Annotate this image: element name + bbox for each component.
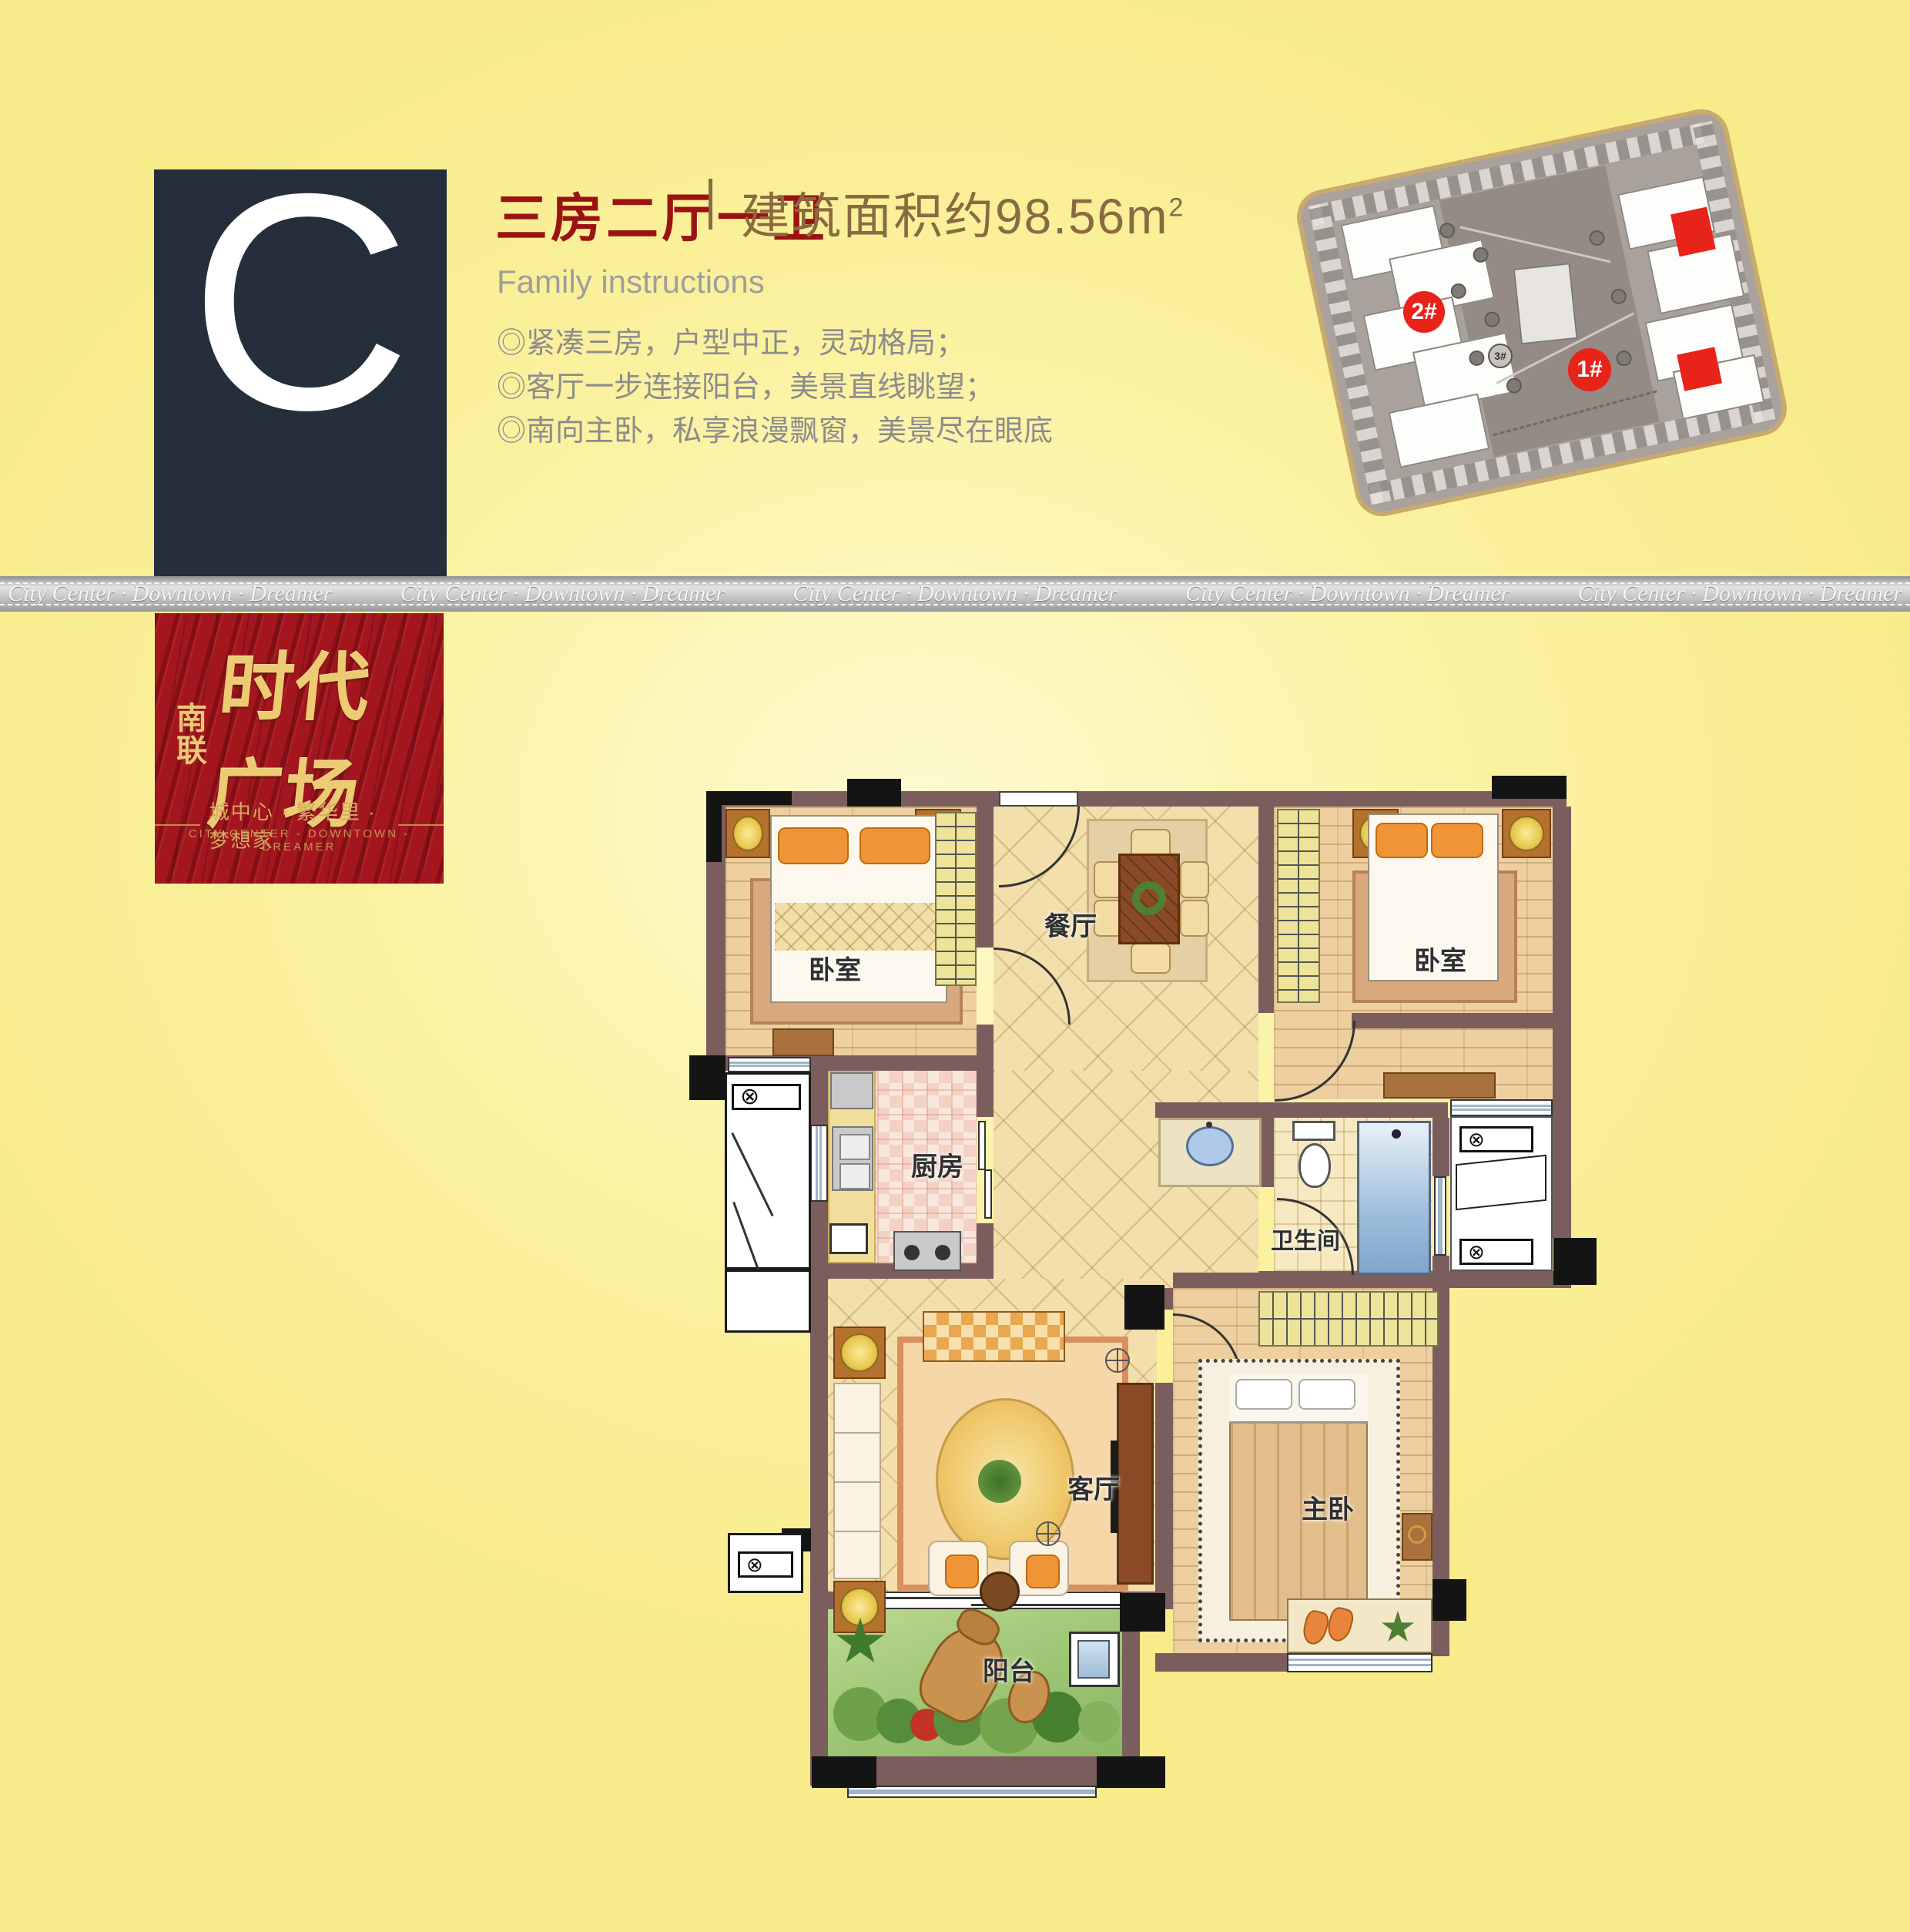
sink-basin: [839, 1163, 870, 1189]
ribbon-text: City Center · Downtown · Dreamer: [1185, 581, 1510, 607]
floor-plan: ⊗ ⊗ 卧室 餐厅 卧室: [685, 770, 1640, 1872]
wall-segment: [706, 791, 1567, 807]
wall-segment: [1155, 1653, 1287, 1672]
slipper-icon: [1300, 1608, 1331, 1647]
shower-head-icon: [1392, 1129, 1401, 1139]
brand-prefix-top: 南: [176, 703, 207, 735]
window: [810, 1125, 828, 1202]
column: [1120, 1593, 1165, 1632]
window: [1287, 1653, 1432, 1672]
closet-box: ⊗: [1459, 1239, 1533, 1265]
brand-row: 南 联 时代广场: [176, 696, 423, 773]
room-label-balcony: 阳台: [983, 1650, 1035, 1688]
dresser: [1402, 1513, 1432, 1561]
dining-chair: [1180, 861, 1209, 898]
slipper-icon: [1325, 1605, 1355, 1644]
ribbon-text: City Center · Downtown · Dreamer: [1578, 581, 1902, 607]
column: [1553, 1238, 1597, 1285]
highlighted-unit: [1677, 347, 1722, 391]
pillow: [945, 1555, 979, 1588]
toilet-tank: [1292, 1121, 1335, 1141]
plant-icon: [1078, 1701, 1120, 1742]
feature-item: ◎紧凑三房，户型中正，灵动格局；: [497, 322, 1053, 366]
badge-building-1: 1#: [1568, 348, 1611, 391]
toilet-bowl: [1298, 1143, 1331, 1188]
ribbon-text: City Center · Downtown · Dreamer: [400, 581, 725, 607]
ribbon-dashed-line: [0, 604, 1910, 605]
mirror-icon: [1408, 1525, 1426, 1544]
building-2: [1389, 394, 1490, 468]
window: [1450, 1099, 1553, 1116]
badge-building-3: 3#: [1488, 344, 1513, 368]
stove: [893, 1231, 961, 1271]
shower: [1357, 1121, 1431, 1275]
feature-item: ◎南向主卧，私享浪漫飘窗，美景尽在眼底: [497, 410, 1053, 454]
balcony-cabinet: [1069, 1632, 1120, 1687]
ribbon-text: City Center · Downtown · Dreamer: [8, 581, 332, 607]
unit-marker-icon: ⊗: [746, 1555, 763, 1575]
subtitle-en: Family instructions: [497, 263, 765, 300]
kitchen-sliding-door: [978, 1121, 986, 1170]
area-superscript: 2: [1168, 193, 1185, 223]
wall-segment: [1173, 1273, 1449, 1288]
dresser: [772, 1028, 834, 1056]
closet-panel: [1456, 1155, 1546, 1210]
column: [812, 1756, 876, 1788]
wardrobe: [1258, 1291, 1439, 1347]
tv-console: [1117, 1383, 1154, 1585]
room-label-kitchen: 厨房: [911, 1145, 963, 1183]
area-value: 建筑面积约98.56m: [741, 189, 1168, 244]
dining-chair: [1180, 900, 1209, 937]
plant-centerpiece: [978, 1460, 1021, 1503]
burner-icon: [935, 1245, 950, 1260]
bay-window-seat: [1287, 1598, 1432, 1653]
tagline-line: [155, 824, 200, 826]
sink-basin: [839, 1134, 870, 1160]
pillow: [859, 827, 930, 864]
tagline-line: [398, 824, 444, 826]
bed-blanket-band: [775, 903, 943, 951]
column: [689, 1055, 725, 1100]
room-label-master: 主卧: [1302, 1488, 1354, 1526]
kitchen-sink: [832, 1126, 873, 1191]
wall-segment: [1262, 1118, 1274, 1187]
wardrobe: [935, 812, 977, 986]
nightstand: [1502, 809, 1551, 858]
lamp-icon: [840, 1333, 879, 1372]
unit-type-box: C [户型] 1#楼2单元/6单元: [154, 169, 447, 578]
oven: [829, 1223, 868, 1254]
ceiling-fixture-icon: [1036, 1521, 1061, 1546]
brand-tagline-en: CITY CENTER - DOWNTOWN - DREAMER: [155, 827, 444, 854]
badge-building-2: 2#: [1403, 291, 1445, 333]
unit-marker-icon: ⊗: [740, 1085, 759, 1109]
unit-marker-icon: ⊗: [1468, 1129, 1485, 1149]
column: [706, 791, 722, 862]
site-plan-map: [1292, 104, 1791, 521]
flyer-page: C [户型] 1#楼2单元/6单元 三房二厅一卫 建筑面积约98.56m2 Fa…: [0, 0, 1910, 1932]
wall-segment: [1432, 1256, 1449, 1288]
pillow: [778, 827, 849, 864]
pillow: [1235, 1379, 1292, 1410]
column: [1432, 1579, 1466, 1621]
window: [728, 1057, 811, 1072]
cabinet-screen: [1077, 1640, 1110, 1679]
dining-chair: [1131, 943, 1171, 974]
brand-prefix-bottom: 联: [176, 735, 207, 767]
wall-segment: [1155, 1383, 1173, 1609]
ribbon-text: City Center · Downtown · Dreamer: [792, 581, 1117, 607]
wall-segment: [977, 1071, 994, 1117]
column: [1492, 776, 1567, 799]
entry-door-opening: [999, 791, 1078, 807]
brand-logo-box: 南 联 时代广场 城中心 · 繁华里 · 梦想家 CITY CENTER - D…: [155, 613, 444, 884]
column: [847, 779, 901, 807]
window: [1434, 1176, 1446, 1256]
unit-type-letter: C: [154, 148, 447, 456]
feature-item: ◎客厅一步连接阳台，美景直线眺望；: [497, 366, 1053, 410]
unit-marker-icon: ⊗: [1468, 1242, 1485, 1262]
decorative-ribbon: City Center · Downtown · Dreamer City Ce…: [0, 576, 1910, 612]
dresser: [1383, 1072, 1496, 1098]
wall-segment: [1258, 807, 1274, 1013]
wall-segment: [1432, 1118, 1449, 1176]
appliance-box: ⊗: [738, 1551, 793, 1578]
room-label-living: 客厅: [1067, 1468, 1120, 1506]
room-label-bedroom-left: 卧室: [809, 949, 861, 987]
lamp-icon: [1509, 816, 1544, 851]
pillow: [1026, 1555, 1060, 1588]
pillow: [1431, 823, 1483, 858]
brand-prefix: 南 联: [176, 703, 207, 767]
wardrobe: [1277, 809, 1320, 1003]
wall-segment: [1352, 1013, 1553, 1028]
table-wreath: [1132, 881, 1166, 915]
room-label-bathroom: 卫生间: [1271, 1222, 1340, 1256]
faucet-icon: [1206, 1122, 1212, 1128]
closet-box: ⊗: [1459, 1126, 1533, 1152]
wall-segment: [977, 1025, 994, 1057]
ceiling-fixture-icon: [1105, 1348, 1130, 1373]
title-divider: [709, 179, 712, 230]
side-table-lamp: [833, 1327, 886, 1379]
coffee-table: [980, 1571, 1020, 1612]
daybed-bench: [923, 1311, 1065, 1362]
feature-list: ◎紧凑三房，户型中正，灵动格局； ◎客厅一步连接阳台，美景直线眺望； ◎南向主卧…: [497, 322, 1053, 454]
plant-icon: [1381, 1611, 1415, 1645]
pillow: [1376, 823, 1428, 858]
column: [1124, 1285, 1164, 1330]
sofa: [833, 1383, 881, 1579]
pillow: [1298, 1379, 1355, 1410]
kitchen-sliding-door: [984, 1169, 992, 1219]
room-label-bedroom-right: 卧室: [1414, 940, 1466, 978]
utility-bay: [725, 1270, 811, 1333]
fridge: [830, 1072, 873, 1109]
wall-segment: [1155, 1102, 1448, 1118]
lamp-icon: [732, 816, 763, 851]
burner-icon: [904, 1245, 920, 1260]
column: [1097, 1756, 1165, 1788]
appliance-box: ⊗: [732, 1084, 801, 1110]
wall-segment: [1553, 807, 1571, 1238]
ribbon-dashed-line: [0, 582, 1910, 584]
wash-basin: [1186, 1126, 1234, 1166]
area-text: 建筑面积约98.56m2: [741, 177, 1185, 248]
window: [847, 1786, 1097, 1798]
building-3: [1513, 263, 1578, 344]
wall-segment: [977, 807, 994, 948]
room-label-dining: 餐厅: [1044, 905, 1097, 943]
nightstand: [725, 809, 770, 858]
